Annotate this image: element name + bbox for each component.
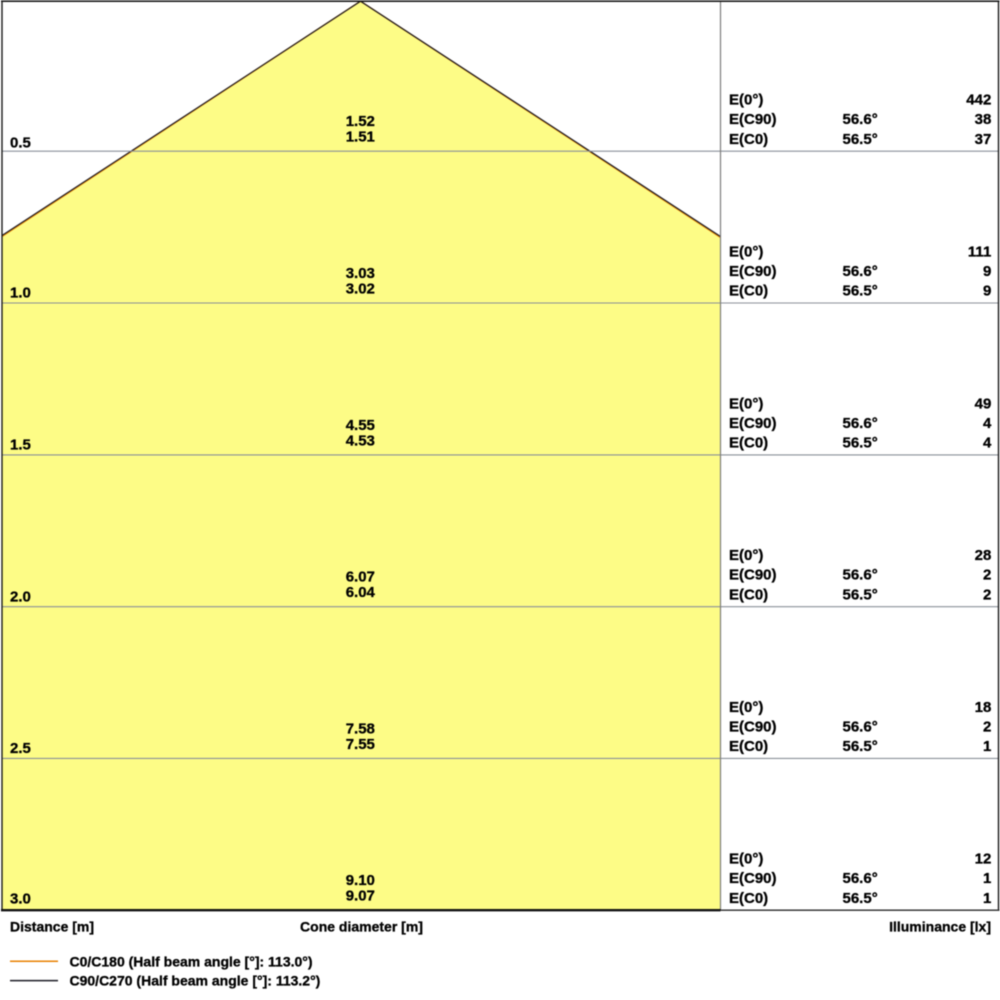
svg-text:E(0°): E(0°) [729,547,763,564]
svg-text:3.03: 3.03 [346,265,375,282]
svg-text:1.51: 1.51 [346,129,375,146]
svg-text:E(0°): E(0°) [729,395,763,412]
svg-text:7.55: 7.55 [346,736,375,753]
svg-text:E(0°): E(0°) [729,243,763,260]
svg-text:6.07: 6.07 [346,569,375,586]
svg-text:Distance [m]: Distance [m] [10,919,94,935]
svg-text:4.55: 4.55 [346,417,375,434]
svg-text:56.5°: 56.5° [843,890,878,907]
svg-text:1: 1 [983,870,991,887]
svg-text:56.6°: 56.6° [843,870,878,887]
svg-text:E(C90): E(C90) [729,718,777,735]
svg-text:9: 9 [983,283,991,300]
svg-text:111: 111 [968,243,991,260]
svg-text:1.0: 1.0 [10,285,31,302]
svg-text:2: 2 [983,567,991,584]
svg-text:2.5: 2.5 [10,740,31,757]
svg-text:0.5: 0.5 [10,135,31,152]
svg-text:4: 4 [983,435,992,452]
svg-text:18: 18 [975,699,992,716]
svg-text:3.02: 3.02 [346,281,375,298]
svg-text:9.10: 9.10 [346,872,375,889]
svg-text:4: 4 [983,415,992,432]
svg-text:Illuminance [lx]: Illuminance [lx] [889,919,991,935]
svg-text:9: 9 [983,263,991,280]
svg-text:E(0°): E(0°) [729,851,763,868]
svg-text:56.5°: 56.5° [843,283,878,300]
svg-text:C0/C180 (Half beam angle [°]:: C0/C180 (Half beam angle [°]: 113.0°) [70,954,313,970]
svg-text:Cone diameter [m]: Cone diameter [m] [300,919,423,935]
svg-text:56.6°: 56.6° [843,415,878,432]
svg-text:12: 12 [975,851,992,868]
svg-text:56.6°: 56.6° [843,263,878,280]
svg-text:E(C90): E(C90) [729,111,777,128]
svg-text:56.5°: 56.5° [843,131,878,148]
svg-text:E(C90): E(C90) [729,567,777,584]
svg-text:56.5°: 56.5° [843,738,878,755]
svg-text:56.6°: 56.6° [843,718,878,735]
svg-text:C90/C270 (Half beam angle [°]:: C90/C270 (Half beam angle [°]: 113.2°) [70,973,321,989]
svg-text:E(C0): E(C0) [729,738,768,755]
svg-text:E(C0): E(C0) [729,586,768,603]
svg-text:E(0°): E(0°) [729,699,763,716]
svg-text:E(C90): E(C90) [729,415,777,432]
svg-text:2.0: 2.0 [10,588,31,605]
svg-text:6.04: 6.04 [346,584,376,601]
svg-text:1.5: 1.5 [10,437,31,454]
svg-text:56.5°: 56.5° [843,435,878,452]
svg-text:37: 37 [975,131,992,148]
svg-text:E(C0): E(C0) [729,131,768,148]
svg-text:E(0°): E(0°) [729,92,763,109]
svg-text:49: 49 [975,395,992,412]
svg-text:38: 38 [975,111,992,128]
svg-text:7.58: 7.58 [346,720,375,737]
svg-text:1: 1 [983,738,991,755]
svg-text:28: 28 [975,547,992,564]
svg-text:E(C0): E(C0) [729,435,768,452]
svg-text:2: 2 [983,586,991,603]
svg-text:56.6°: 56.6° [843,111,878,128]
svg-text:E(C90): E(C90) [729,263,777,280]
svg-text:4.53: 4.53 [346,432,375,449]
svg-text:2: 2 [983,718,991,735]
svg-text:E(C0): E(C0) [729,283,768,300]
svg-text:442: 442 [966,92,991,109]
svg-text:9.07: 9.07 [346,888,375,905]
svg-text:E(C90): E(C90) [729,870,777,887]
svg-text:1: 1 [983,890,991,907]
svg-text:3.0: 3.0 [10,890,31,907]
svg-text:1.52: 1.52 [346,113,375,130]
svg-text:E(C0): E(C0) [729,890,768,907]
svg-text:56.5°: 56.5° [843,586,878,603]
svg-text:56.6°: 56.6° [843,567,878,584]
